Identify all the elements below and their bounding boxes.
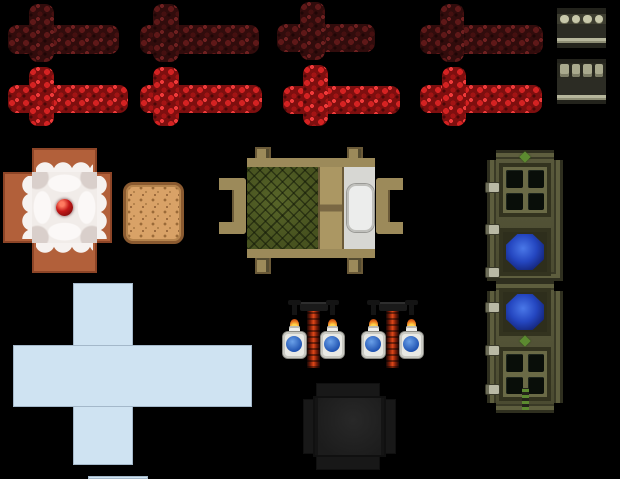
potion-bottle [283, 332, 306, 358]
cauldron-sprite [303, 383, 396, 470]
cake-cross-sprite [3, 148, 118, 273]
brewing-stand-1 [283, 300, 345, 370]
door-sprite-column [487, 150, 563, 413]
piston-knob [583, 64, 592, 77]
cake-icing-drip-left [14, 176, 32, 239]
redstone-dust-vertical [29, 67, 54, 126]
cake-icing-drip-top [36, 152, 93, 172]
piston-knob [595, 15, 604, 23]
door-hinge [485, 267, 500, 278]
door-hinge [485, 302, 500, 313]
door-upper-half [487, 150, 563, 281]
window-pane [506, 354, 523, 372]
redstone-cross-powered-4 [420, 67, 542, 126]
bed-blanket [247, 167, 318, 249]
door-corner-notch [554, 281, 563, 291]
window-pane [506, 193, 523, 211]
bed-side-bracket-right [376, 178, 403, 234]
door-corner-notch [487, 281, 496, 291]
redstone-cross-unpowered-2 [140, 4, 259, 62]
door-pane-window [499, 163, 551, 217]
cake-sponge-square [123, 182, 184, 244]
cake-icing-drip-bottom [36, 243, 93, 267]
window-pane [528, 377, 545, 395]
blue-glass-octagon [506, 294, 544, 330]
redstone-dust-vertical [153, 4, 179, 62]
plus-cross-horizontal-bar [13, 345, 252, 407]
door-glass-window [499, 288, 551, 336]
redstone-dust-vertical [29, 4, 54, 62]
brewing-hook [330, 300, 335, 315]
piston-side-block-bottom [557, 59, 606, 104]
redstone-cross-powered-2 [140, 67, 262, 126]
door-hinge [485, 384, 500, 395]
redstone-dust-vertical [300, 2, 325, 60]
window-pane [528, 170, 545, 188]
redstone-cross-unpowered-1 [8, 4, 119, 62]
potion-liquid [403, 336, 419, 352]
piston-knob [560, 64, 569, 77]
redstone-cross-powered-1 [8, 67, 128, 126]
redstone-dust-horizontal [8, 85, 128, 113]
bed-wood-strip [318, 167, 344, 249]
piston-knob [595, 64, 604, 77]
door-hinge [485, 345, 500, 356]
cake-cherry [56, 199, 73, 216]
bed-side-bracket-left [219, 178, 246, 234]
door-hinge [485, 224, 500, 235]
door-corner-notch [487, 150, 496, 160]
potion-liquid [324, 336, 340, 352]
brewing-stand-cap [300, 302, 328, 311]
door-ladder-ornament [522, 388, 529, 410]
redstone-dust-vertical [303, 65, 328, 126]
piston-dark-band [557, 43, 606, 48]
piston-knob [560, 15, 569, 23]
blue-glass-octagon [506, 234, 544, 270]
piston-body [557, 24, 606, 38]
bed-sprite [219, 147, 403, 274]
potion-liquid [286, 336, 302, 352]
bed-pillow [347, 184, 374, 232]
piston-body [557, 78, 606, 95]
door-corner-notch [554, 150, 563, 160]
redstone-cross-unpowered-4 [420, 4, 543, 62]
redstone-dust-vertical [153, 67, 179, 126]
piston-knob [572, 15, 581, 23]
redstone-cross-unpowered-3 [277, 2, 375, 60]
piston-dark-band [557, 100, 606, 104]
cauldron-body [313, 396, 386, 457]
brewing-hook [409, 300, 414, 315]
door-corner-notch [554, 403, 563, 413]
bed-body [247, 158, 375, 258]
redstone-dust-horizontal [283, 86, 400, 114]
cake-icing-drip-right [97, 176, 113, 239]
brewing-stand-cap [379, 302, 407, 311]
piston-knob [583, 15, 592, 23]
cauldron-tab-bottom [316, 456, 380, 470]
texture-atlas-canvas [0, 0, 620, 479]
piston-knob-row [557, 14, 606, 24]
redstone-dust-horizontal [420, 85, 542, 113]
potion-bottle [362, 332, 385, 358]
window-pane [506, 170, 523, 188]
redstone-dust-horizontal [420, 25, 543, 54]
brewing-stand-rod [386, 305, 399, 368]
redstone-cross-powered-3 [283, 65, 400, 126]
cauldron-tab-right [385, 399, 396, 454]
door-diamond-ornament [519, 335, 530, 346]
brewing-hook [292, 300, 297, 315]
brewing-stand-rod [307, 305, 320, 368]
brewing-hook [371, 300, 376, 315]
piston-side-block-top [557, 8, 606, 48]
redstone-dust-vertical [440, 4, 464, 62]
redstone-dust-vertical [442, 67, 466, 126]
door-hinge [485, 182, 500, 193]
piston-knob [572, 64, 581, 77]
redstone-dust-horizontal [277, 24, 375, 52]
door-corner-notch [487, 403, 496, 413]
door-diamond-ornament [519, 151, 530, 162]
redstone-dust-horizontal [8, 25, 119, 54]
window-pane [506, 377, 523, 395]
window-pane [528, 193, 545, 211]
door-glass-window [499, 228, 551, 276]
door-lower-half [487, 281, 563, 413]
potion-bottle [400, 332, 423, 358]
cauldron-tab-top [316, 383, 380, 397]
window-pane [528, 354, 545, 372]
bed-sheet-area [344, 167, 375, 249]
potion-bottle [321, 332, 344, 358]
piston-knob-row [557, 63, 606, 78]
brewing-stand-2 [362, 300, 424, 370]
potion-liquid [365, 336, 381, 352]
